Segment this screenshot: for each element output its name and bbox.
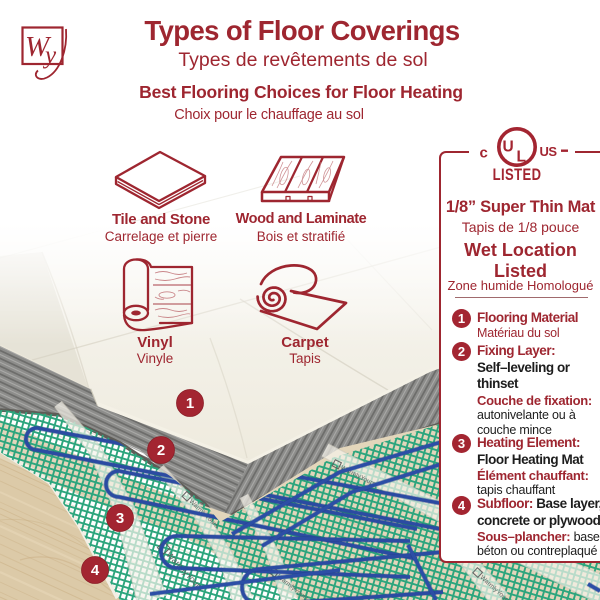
svg-text:3: 3: [116, 510, 124, 527]
svg-text:c: c: [480, 145, 488, 162]
svg-text:1: 1: [186, 395, 194, 412]
svg-text:4: 4: [91, 562, 100, 579]
svg-text:US: US: [540, 144, 558, 159]
svg-text:LISTED: LISTED: [493, 165, 542, 184]
svg-text:L: L: [517, 149, 526, 166]
svg-text:2: 2: [157, 442, 165, 459]
svg-text:U: U: [503, 139, 514, 156]
